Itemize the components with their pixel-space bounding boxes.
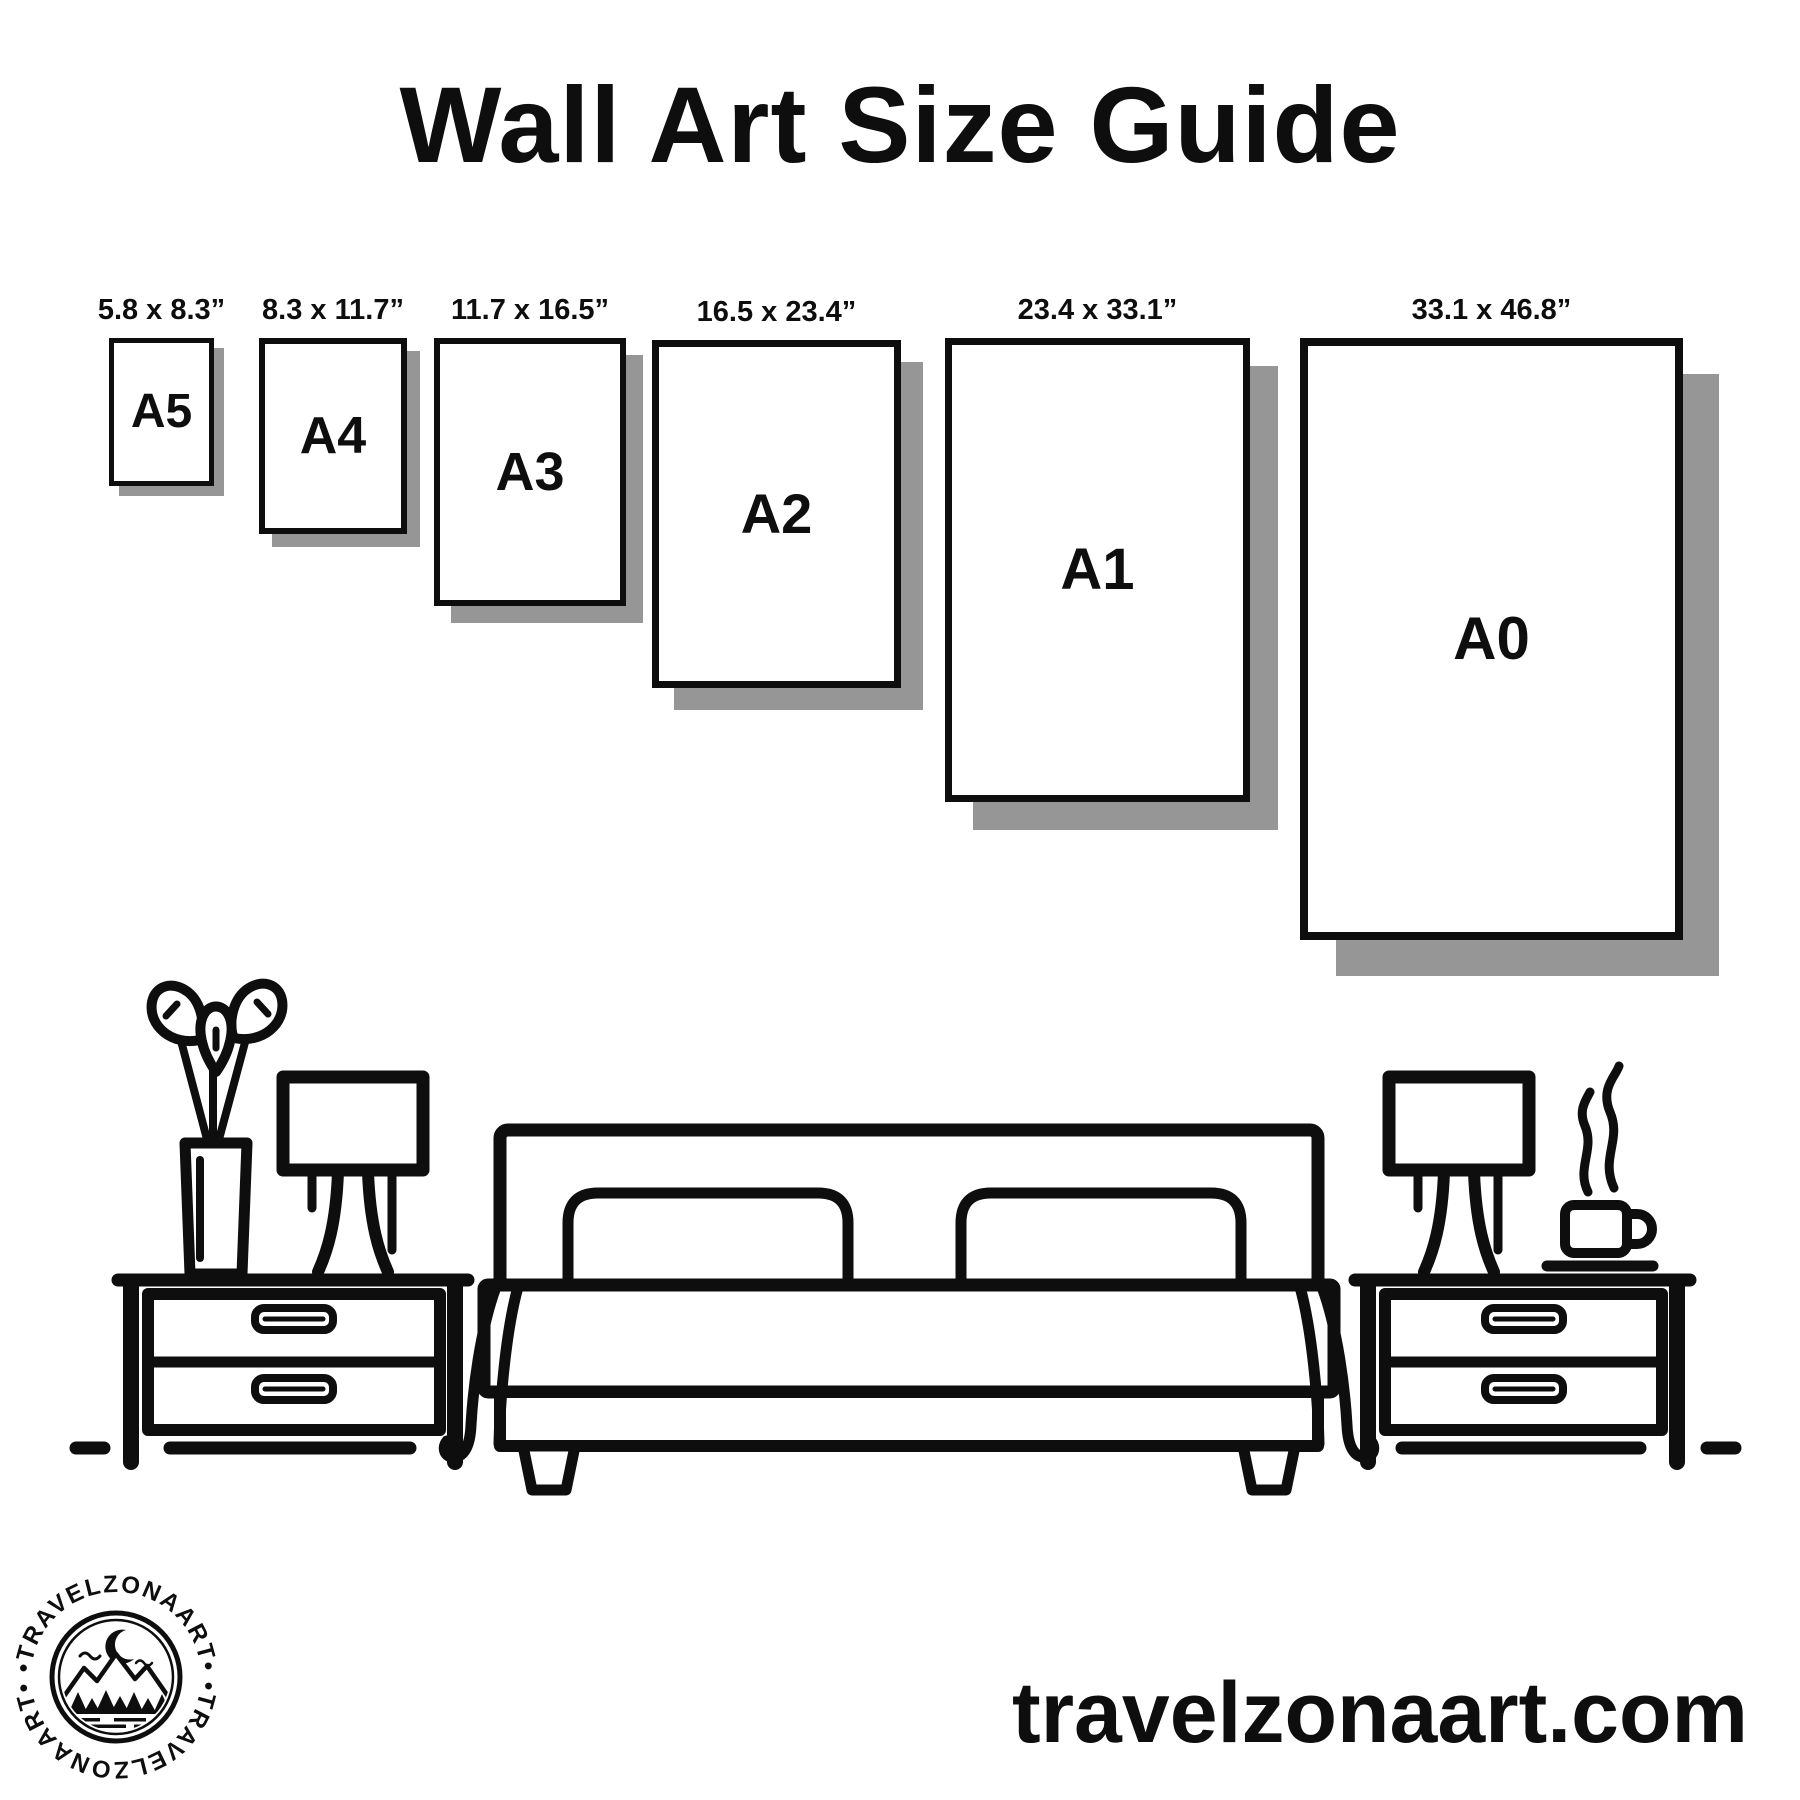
lamp-stem xyxy=(1424,1172,1444,1272)
mattress xyxy=(484,1285,1334,1392)
bird-icon xyxy=(80,1653,100,1659)
vase xyxy=(185,1143,247,1274)
coffee-cup-icon xyxy=(1547,1066,1653,1266)
lamp-stem xyxy=(1474,1172,1494,1272)
nightstand-right-icon xyxy=(1355,1280,1690,1462)
lamp-shade xyxy=(283,1077,423,1170)
website-url: travelzonaart.com xyxy=(1012,1664,1748,1763)
cup-body xyxy=(1565,1205,1627,1253)
leaf xyxy=(231,984,282,1039)
nightstand-left-icon xyxy=(118,1280,468,1462)
steam-icon xyxy=(1607,1066,1619,1188)
plant-vase-icon xyxy=(152,984,283,1274)
bed-base xyxy=(500,1392,1318,1446)
steam-icon xyxy=(1582,1092,1590,1192)
bird-icon xyxy=(136,1661,152,1666)
leaf xyxy=(152,986,203,1041)
table-lamp-right-icon xyxy=(1389,1077,1529,1272)
bed-leg xyxy=(523,1446,575,1490)
bedroom-scene: •TRAVELZONAART• •TRAVELZONAART• xyxy=(0,0,1800,1800)
pillow-left xyxy=(568,1193,848,1290)
pillow-right xyxy=(961,1193,1241,1290)
table-lamp-left-icon xyxy=(283,1077,423,1272)
bed-icon xyxy=(444,1130,1373,1490)
wall-art-size-guide-page: Wall Art Size Guide 5.8 x 8.3”A58.3 x 11… xyxy=(0,0,1800,1800)
lamp-stem xyxy=(368,1172,388,1272)
lamp-stem xyxy=(318,1172,338,1272)
bed-leg xyxy=(1243,1446,1295,1490)
lamp-shade xyxy=(1389,1077,1529,1170)
logo-badge: •TRAVELZONAART• •TRAVELZONAART• xyxy=(10,1571,222,1784)
